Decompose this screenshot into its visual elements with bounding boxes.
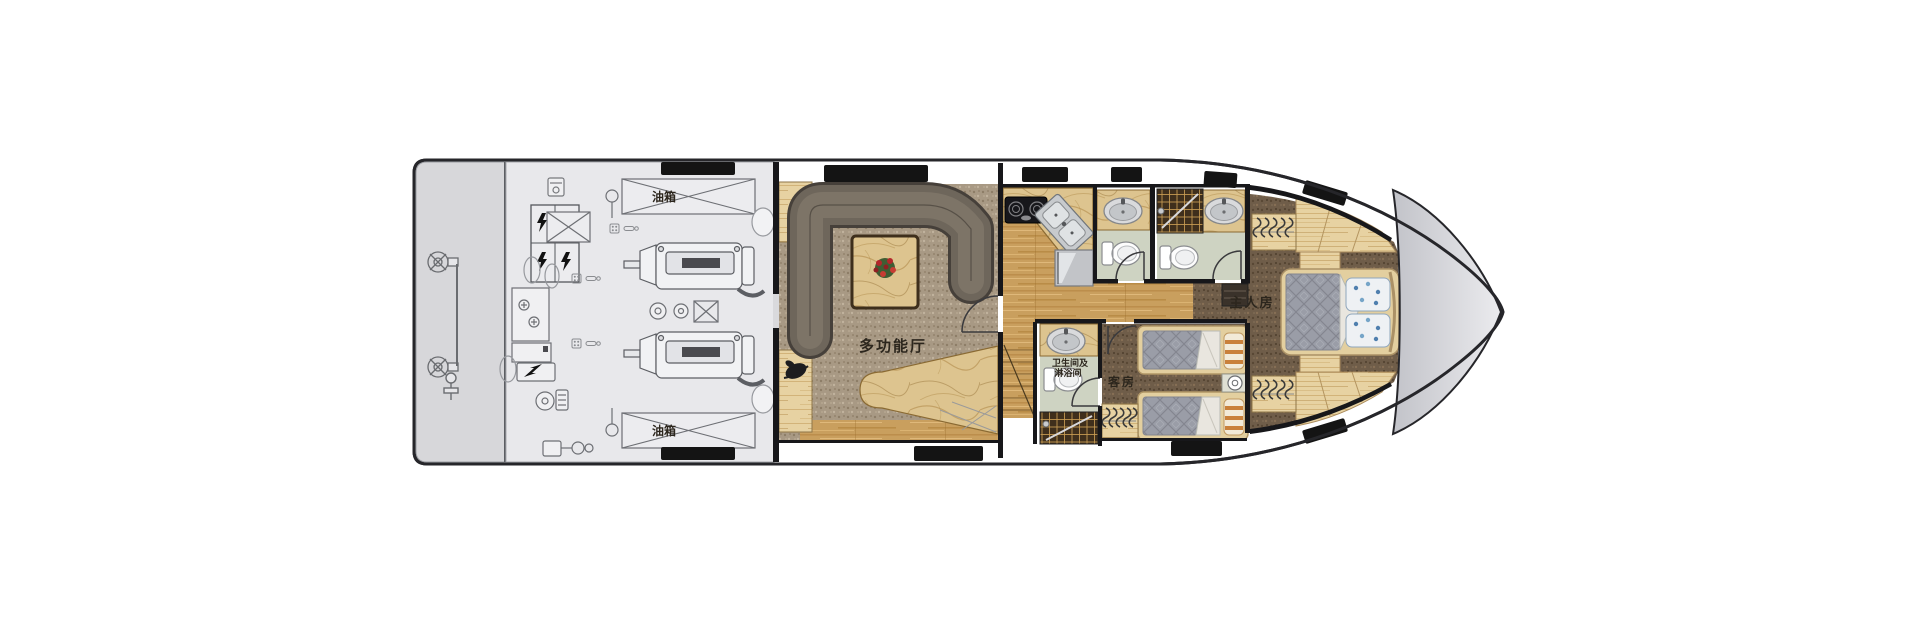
window-lounge-bottom bbox=[914, 446, 983, 461]
window-masterbath-top bbox=[1203, 171, 1237, 188]
corridor-floor bbox=[1093, 283, 1196, 322]
master-bath-sink bbox=[1205, 198, 1243, 224]
window-guest-bottom bbox=[1171, 441, 1222, 456]
master-shower bbox=[1157, 189, 1203, 233]
master-pillow-bottom bbox=[1346, 314, 1390, 347]
window-engine-top bbox=[661, 162, 735, 175]
lounge-cabinet-bottom bbox=[779, 350, 812, 432]
water-tank bbox=[547, 212, 590, 242]
master-nightstand-bottom bbox=[1300, 353, 1340, 372]
guest-wardrobe bbox=[1102, 404, 1138, 438]
guest-bath-label-line2: 淋浴间 bbox=[1054, 367, 1081, 379]
guest-cabin-label: 客房 bbox=[1107, 374, 1136, 389]
day-head-bathroom bbox=[1097, 190, 1150, 281]
swim-platform bbox=[416, 162, 505, 462]
window-dayhead-top bbox=[1111, 167, 1142, 182]
hatch-top bbox=[752, 208, 774, 236]
fuel-tank-label-top: 油箱 bbox=[652, 189, 676, 204]
guest-bed-lower bbox=[1138, 392, 1248, 440]
master-wardrobe-bottom bbox=[1252, 376, 1296, 412]
master-wardrobe-top bbox=[1252, 214, 1296, 250]
fridge bbox=[1055, 250, 1093, 286]
lounge: 多功能厅 bbox=[779, 182, 998, 442]
master-bed bbox=[1281, 269, 1399, 355]
window-lounge-top bbox=[824, 165, 928, 182]
guest-bathroom: 卫生间及 淋浴间 bbox=[1040, 324, 1100, 444]
stairs-down bbox=[1003, 322, 1035, 418]
fuel-tank-bottom: 油箱 bbox=[606, 408, 755, 448]
fuel-tank-top: 油箱 bbox=[606, 179, 755, 218]
master-bath-toilet bbox=[1160, 246, 1198, 269]
engine-room: 油箱 油箱 bbox=[500, 162, 774, 462]
window-engine-bottom bbox=[661, 447, 735, 460]
yacht-lower-deck-plan: 油箱 油箱 bbox=[0, 0, 1920, 620]
fuel-tank-label-bottom: 油箱 bbox=[652, 423, 676, 438]
window-galley-top bbox=[1022, 167, 1068, 182]
master-pillow-top bbox=[1346, 278, 1390, 311]
guest-nightstand bbox=[1222, 374, 1248, 392]
sea-strainer bbox=[548, 178, 564, 196]
yacht-floorplan-page: 油箱 油箱 bbox=[0, 0, 1920, 620]
guest-shower bbox=[1040, 412, 1098, 444]
guest-bed-upper bbox=[1138, 326, 1248, 374]
day-head-sink bbox=[1104, 198, 1142, 224]
guest-bath-sink bbox=[1047, 328, 1085, 354]
coffee-table bbox=[852, 236, 918, 308]
master-bathroom bbox=[1157, 189, 1245, 280]
lounge-label: 多功能厅 bbox=[859, 337, 927, 355]
guest-bath-label-line1: 卫生间及 bbox=[1052, 357, 1089, 369]
generator bbox=[512, 288, 551, 362]
hatch-bottom bbox=[752, 385, 774, 413]
master-cabin-label: 主人房 bbox=[1229, 295, 1274, 311]
guest-cabin: 客房 bbox=[1102, 324, 1248, 440]
master-nightstand-top bbox=[1300, 252, 1340, 271]
